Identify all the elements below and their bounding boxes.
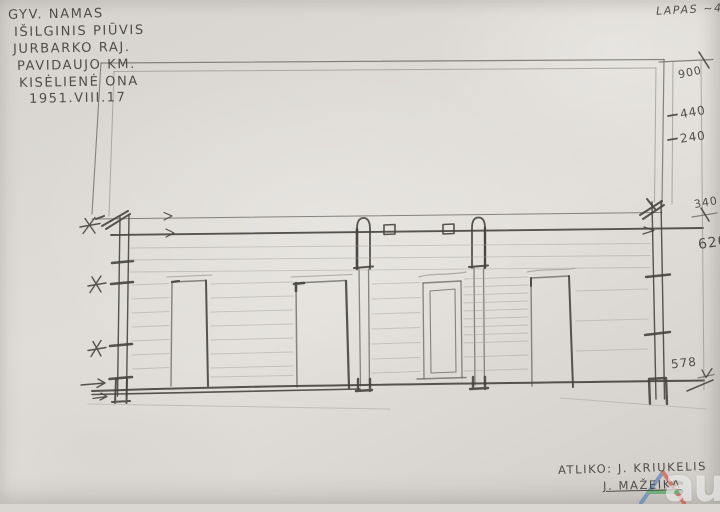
- title-line-building: GYV. NAMAS: [8, 7, 104, 22]
- right-dimension-marks: [659, 52, 717, 391]
- interior-post-2: [469, 218, 488, 390]
- roof-outline: [92, 60, 664, 217]
- title-line-district: JURBARKO RAJ.: [13, 41, 131, 56]
- title-line-date: 1951.VIII.17: [29, 91, 127, 106]
- dimension-240: 240: [679, 129, 706, 144]
- door-3: [417, 272, 466, 379]
- left-dimension-marks: [80, 218, 107, 401]
- ground-line: [88, 381, 706, 410]
- sheet-label: LAPAS ~4: [656, 2, 720, 16]
- left-wall-post: [96, 211, 133, 403]
- title-line-owner: KISĖLIENĖ ONA: [19, 75, 139, 90]
- door-1: [167, 275, 212, 386]
- dimension-620: 620: [697, 234, 720, 252]
- door-2: [291, 275, 352, 389]
- interior-post-1: [354, 218, 373, 391]
- right-wall-post: [640, 199, 670, 404]
- ceiling-beam: [92, 213, 703, 238]
- dimension-578: 578: [670, 356, 697, 371]
- title-line-village: PAVIDAUJO KM.: [17, 58, 136, 73]
- beam-blocks: [384, 224, 454, 235]
- door-4: [527, 269, 575, 388]
- title-line-section: IŠILGINIS PIŪVIS: [14, 24, 145, 39]
